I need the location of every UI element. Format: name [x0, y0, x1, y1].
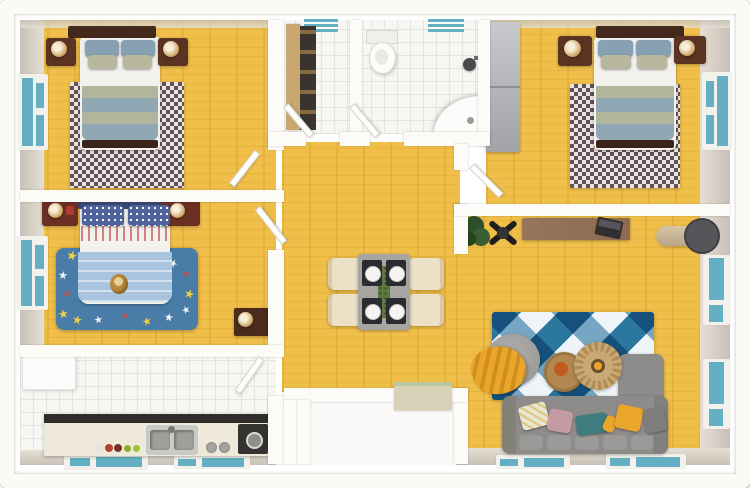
outer-wall [0, 0, 750, 488]
floor-plan: ★ ★ ★ ★ ★ ★ ★ ★ ★ ★ ★ ★ ★ ★ ★ [0, 0, 750, 488]
